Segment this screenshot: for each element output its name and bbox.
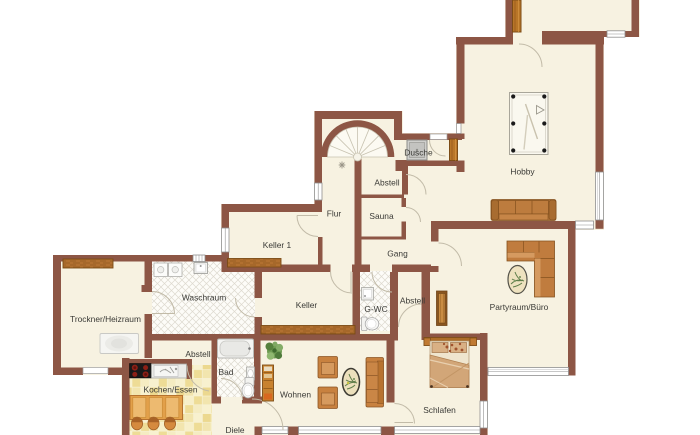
svg-text:Sauna: Sauna (369, 211, 394, 221)
svg-text:Hobby: Hobby (510, 167, 535, 177)
svg-text:Abstell: Abstell (374, 178, 399, 188)
svg-text:Kochen/Essen: Kochen/Essen (143, 385, 197, 395)
svg-text:Bad: Bad (219, 367, 234, 377)
svg-text:Dusche: Dusche (404, 148, 433, 158)
svg-text:Diele: Diele (225, 425, 244, 435)
svg-text:Abstell: Abstell (400, 296, 425, 306)
svg-text:Partyraum/Büro: Partyraum/Büro (490, 302, 549, 312)
svg-text:Trockner/Heizraum: Trockner/Heizraum (70, 314, 141, 324)
svg-text:Schlafen: Schlafen (423, 405, 456, 415)
svg-text:Abstell: Abstell (185, 349, 210, 359)
svg-text:Keller: Keller (296, 300, 318, 310)
svg-text:Wohnen: Wohnen (280, 390, 311, 400)
svg-text:Gang: Gang (387, 249, 408, 259)
svg-text:G-WC: G-WC (364, 304, 387, 314)
svg-text:Keller 1: Keller 1 (263, 240, 292, 250)
svg-text:Waschraum: Waschraum (182, 293, 226, 303)
svg-text:Flur: Flur (327, 209, 342, 219)
